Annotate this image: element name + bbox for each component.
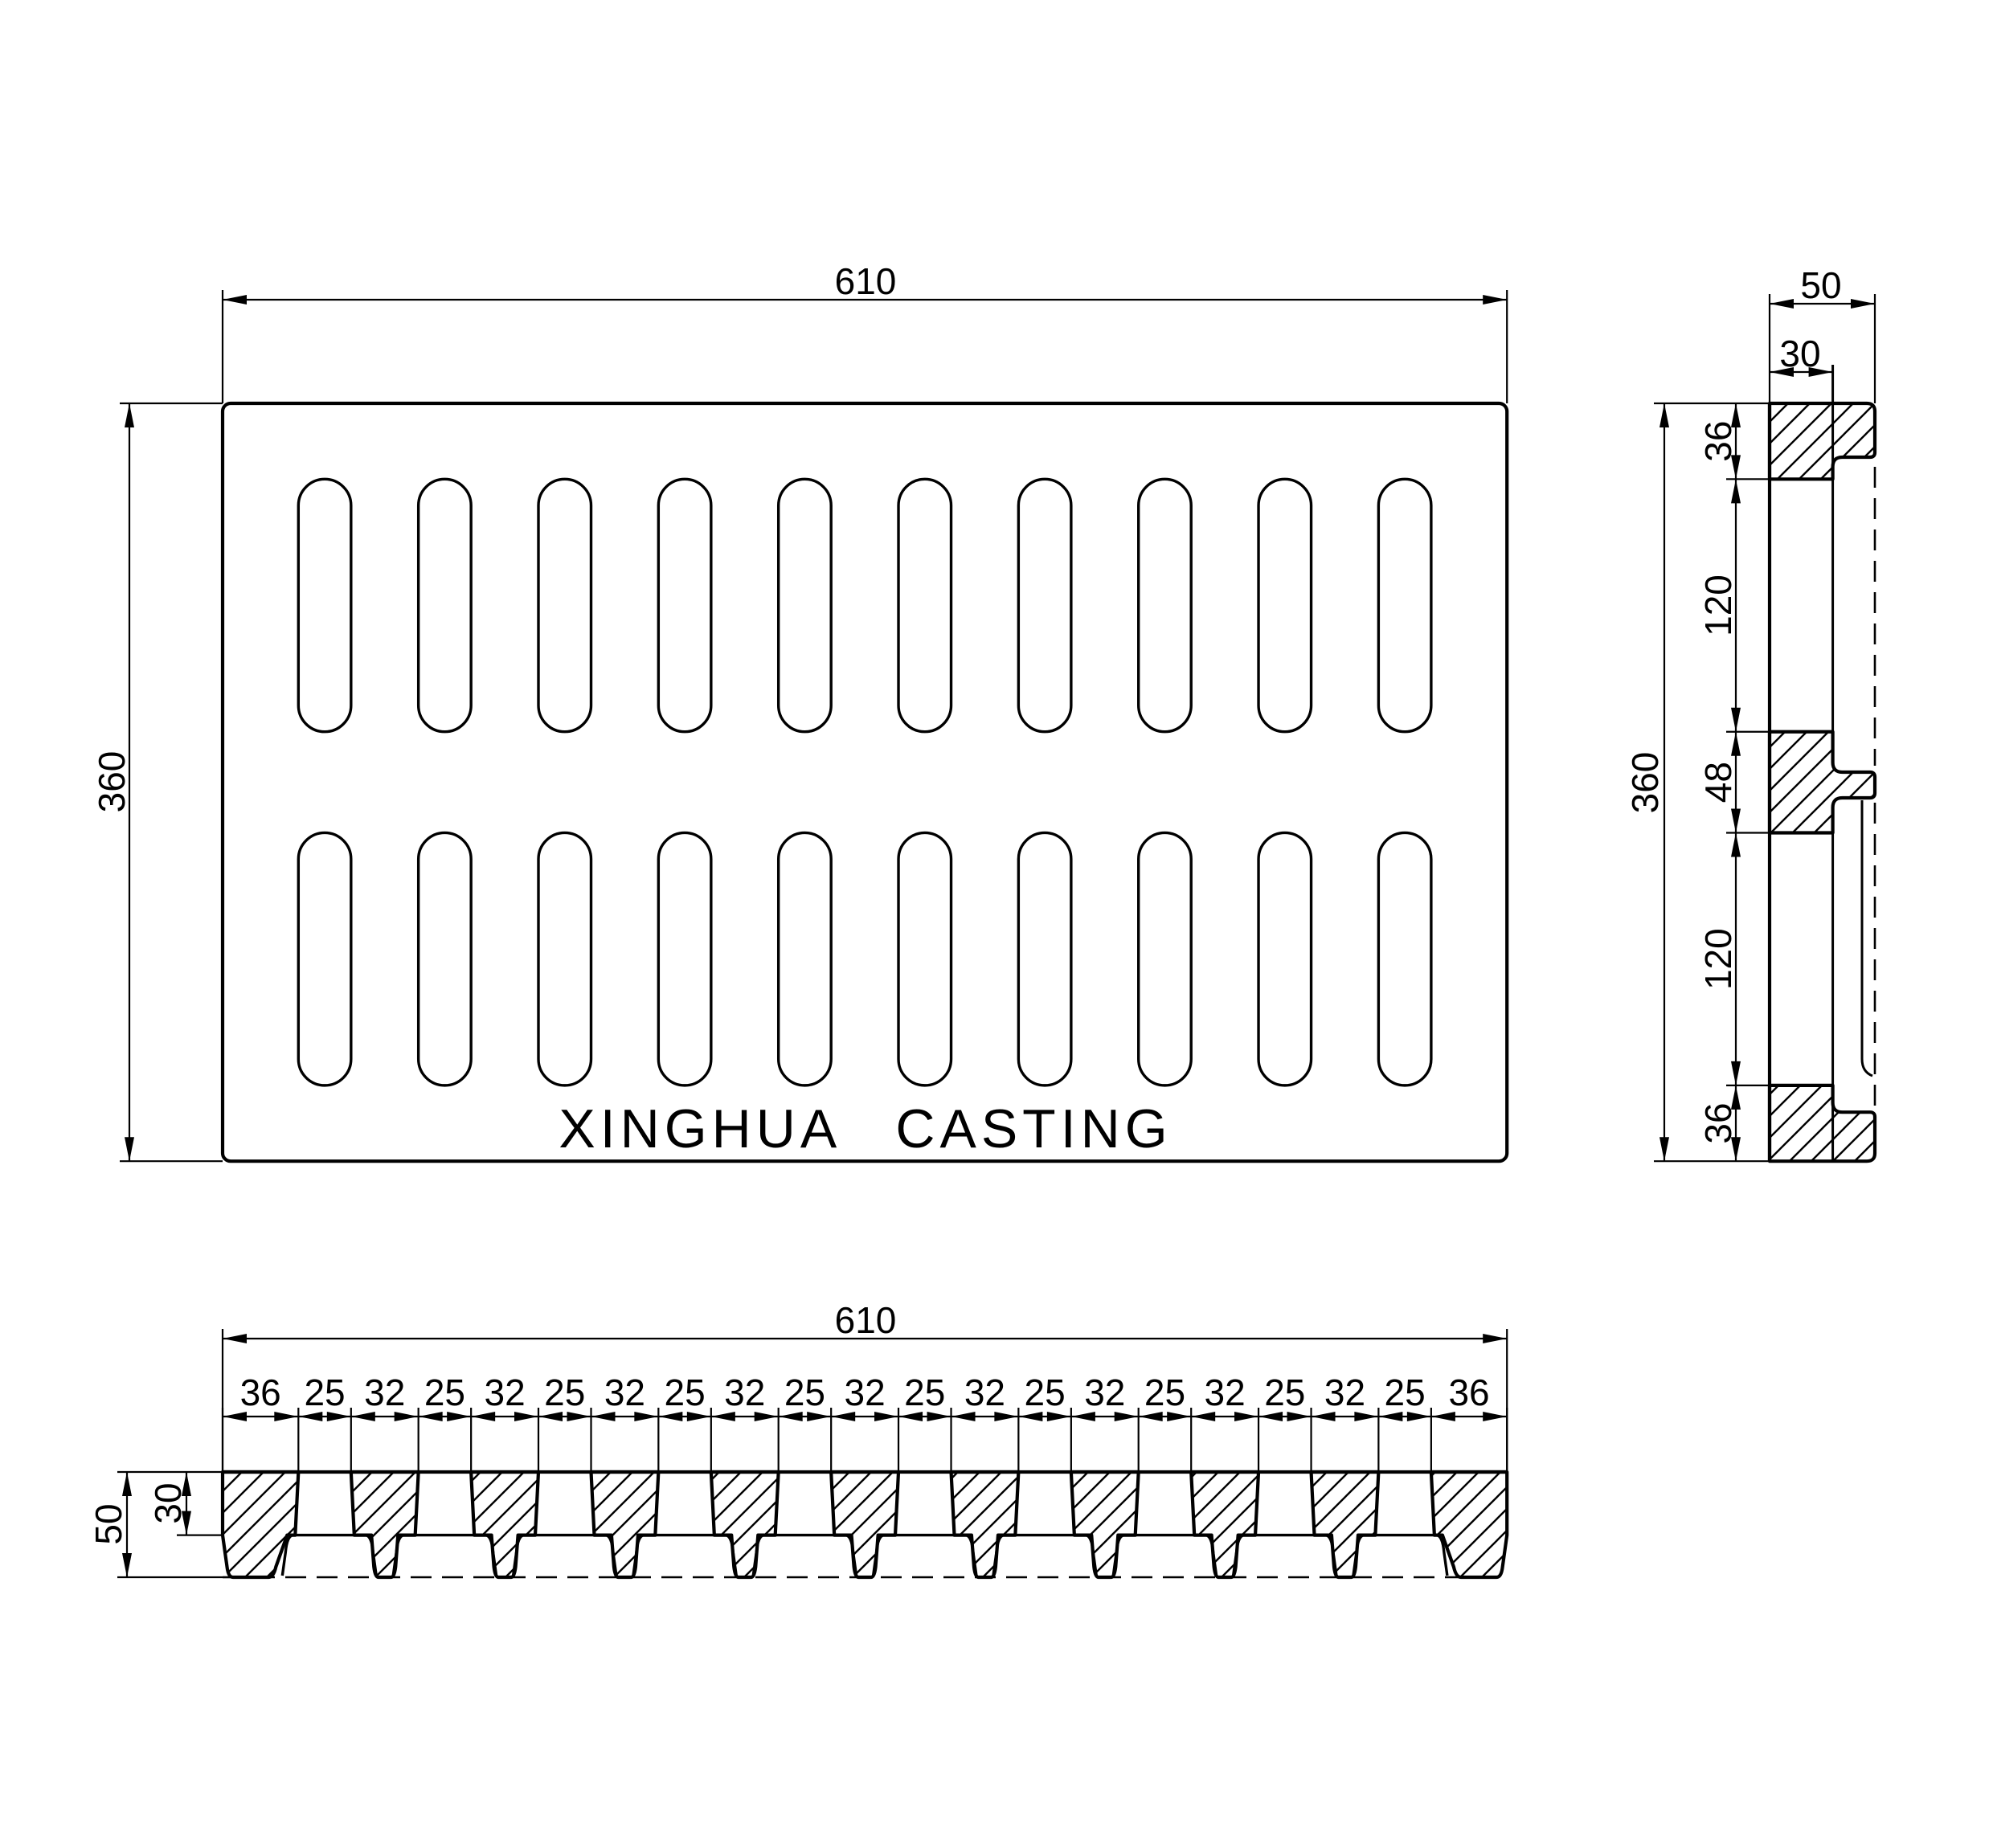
- dim-label: 25: [665, 1372, 706, 1413]
- arrowhead: [1731, 732, 1741, 756]
- slot: [298, 479, 351, 731]
- dim-label: 120: [1697, 574, 1739, 636]
- bottom-bar: [1431, 1472, 1507, 1577]
- slot: [1018, 832, 1071, 1085]
- arrowhead: [1483, 1334, 1507, 1343]
- far-foot-outline: [874, 1535, 976, 1576]
- dim-label: 36: [1448, 1372, 1489, 1413]
- arrowhead: [1659, 1137, 1669, 1161]
- slot: [779, 479, 831, 731]
- slot: [538, 479, 591, 731]
- dim-label: 48: [1697, 762, 1739, 803]
- dim-label: 32: [1084, 1372, 1125, 1413]
- arrowhead: [1731, 1061, 1741, 1085]
- bottom-bar: [831, 1472, 898, 1577]
- dim-label: 25: [1264, 1372, 1305, 1413]
- arrowhead: [125, 403, 134, 427]
- slot: [1258, 832, 1312, 1085]
- arrowhead: [122, 1472, 132, 1496]
- dim-label: 32: [964, 1372, 1005, 1413]
- slot: [538, 832, 591, 1085]
- dim-label: 32: [484, 1372, 525, 1413]
- bottom-plate-dim-label: 30: [147, 1482, 189, 1523]
- slot: [1258, 479, 1312, 731]
- slot: [1378, 479, 1431, 731]
- slot: [1139, 832, 1192, 1085]
- bottom-bar: [1071, 1472, 1139, 1577]
- far-foot-outline: [993, 1535, 1096, 1576]
- dim-label: 32: [1324, 1372, 1365, 1413]
- dim-label: 36: [240, 1372, 281, 1413]
- dim-label: 32: [724, 1372, 765, 1413]
- far-foot-outline: [282, 1535, 376, 1576]
- slot: [298, 832, 351, 1085]
- bottom-bar: [591, 1472, 659, 1577]
- far-foot-outline: [1113, 1535, 1216, 1576]
- side-top-bar: [1770, 403, 1875, 479]
- bottom-bar: [351, 1472, 419, 1577]
- dim-label: 25: [1385, 1372, 1426, 1413]
- dim-label: 32: [1205, 1372, 1246, 1413]
- arrowhead: [1659, 403, 1669, 427]
- far-foot-outline: [1234, 1535, 1336, 1576]
- arrowhead: [1483, 295, 1507, 305]
- arrowhead: [125, 1137, 134, 1161]
- far-foot-outline: [393, 1535, 496, 1576]
- dim-label: 25: [544, 1372, 585, 1413]
- side-width-dim-label: 50: [1800, 264, 1841, 306]
- plate-outline: [223, 403, 1507, 1161]
- slot: [1139, 479, 1192, 731]
- bottom-bar: [1312, 1472, 1379, 1577]
- arrowhead: [1731, 708, 1741, 732]
- slot: [779, 832, 831, 1085]
- dim-label: 25: [784, 1372, 825, 1413]
- dim-label: 36: [1697, 1102, 1739, 1143]
- dim-label: 32: [364, 1372, 405, 1413]
- slot: [898, 479, 951, 731]
- slot: [1018, 479, 1071, 731]
- arrowhead: [1731, 832, 1741, 857]
- arrowhead: [1851, 299, 1875, 309]
- dim-label: 25: [904, 1372, 945, 1413]
- side-far-rib-foot: [1862, 1059, 1872, 1076]
- dim-label: 36: [1697, 421, 1739, 462]
- arrowhead: [223, 295, 247, 305]
- bottom-bar: [471, 1472, 538, 1577]
- arrowhead: [1731, 808, 1741, 832]
- slot: [419, 479, 472, 731]
- bottom-bar: [951, 1472, 1019, 1577]
- arrowhead: [1770, 299, 1794, 309]
- engineering-drawing: 610 360 50 30 360 610 50 30 XINGHUA CAST…: [0, 0, 1993, 1848]
- arrowhead: [1731, 479, 1741, 503]
- dim-label: 32: [604, 1372, 645, 1413]
- slot: [898, 832, 951, 1085]
- side-bottom-bar: [1770, 1085, 1875, 1161]
- arrowhead: [122, 1553, 132, 1577]
- bottom-bar: [711, 1472, 779, 1577]
- side-middle-bar: [1770, 732, 1875, 833]
- plan-width-dim-label: 610: [835, 260, 897, 302]
- plan-height-dim-label: 360: [91, 751, 133, 813]
- side-web-dim-label: 30: [1779, 333, 1820, 374]
- brand-text: XINGHUA CASTING: [559, 1098, 1172, 1159]
- far-foot-outline: [633, 1535, 736, 1576]
- dim-label: 25: [1025, 1372, 1066, 1413]
- drawing-sheet: 610 360 50 30 360 610 50 30 XINGHUA CAST…: [0, 0, 1993, 1848]
- side-height-dim-label: 360: [1624, 752, 1666, 814]
- slot: [658, 479, 711, 731]
- dim-label: 25: [424, 1372, 465, 1413]
- bottom-bar: [223, 1472, 298, 1577]
- arrowhead: [223, 1334, 247, 1343]
- dim-label: 25: [1144, 1372, 1185, 1413]
- bottom-width-dim-label: 610: [835, 1299, 897, 1341]
- dim-label: 25: [304, 1372, 345, 1413]
- slot: [419, 832, 472, 1085]
- slot: [658, 832, 711, 1085]
- bottom-height-dim-label: 50: [88, 1503, 129, 1544]
- slot: [1378, 832, 1431, 1085]
- bottom-bar: [1191, 1472, 1258, 1577]
- far-foot-outline: [1353, 1535, 1447, 1576]
- far-foot-outline: [514, 1535, 616, 1576]
- dim-label: 120: [1697, 928, 1739, 990]
- dim-label: 32: [845, 1372, 886, 1413]
- far-foot-outline: [753, 1535, 856, 1576]
